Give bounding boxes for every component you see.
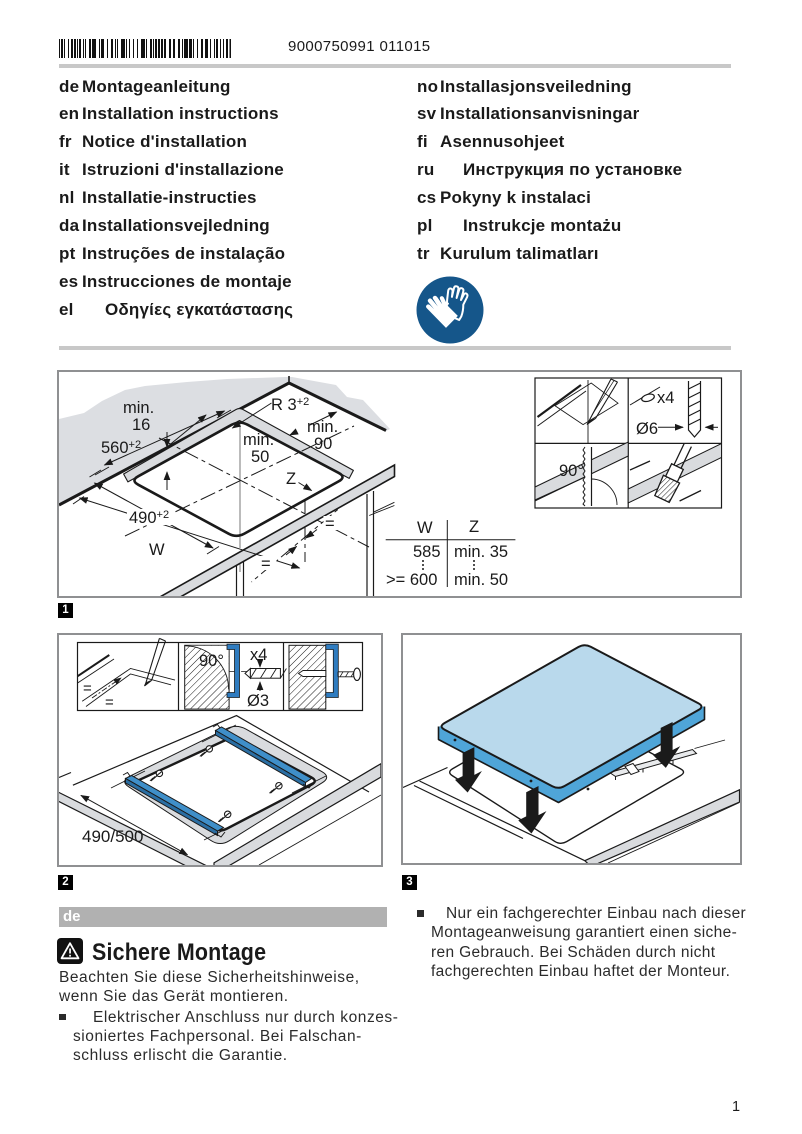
svg-text:90: 90 <box>314 435 332 453</box>
svg-text:16: 16 <box>132 416 150 434</box>
svg-text:>= 600: >= 600 <box>386 571 437 589</box>
svg-text:90°: 90° <box>199 652 224 670</box>
svg-text:=: = <box>325 515 335 533</box>
svg-text:min.: min. <box>243 431 274 449</box>
svg-text:Ø3: Ø3 <box>247 692 269 710</box>
svg-text:min. 50: min. 50 <box>454 571 508 589</box>
svg-text:=: = <box>261 555 271 573</box>
svg-text:50: 50 <box>251 448 269 466</box>
svg-text:Ø6: Ø6 <box>636 420 658 438</box>
svg-text:Z: Z <box>469 518 479 536</box>
svg-text:x4: x4 <box>250 646 267 664</box>
svg-text:R 3+2: R 3+2 <box>271 396 309 414</box>
svg-text:490/500: 490/500 <box>82 827 143 846</box>
svg-text:min.: min. <box>307 418 338 436</box>
svg-text:x4: x4 <box>657 389 674 407</box>
svg-text:=: = <box>105 694 114 711</box>
svg-text:W: W <box>149 541 165 559</box>
svg-text:585: 585 <box>413 543 441 561</box>
svg-text:Z: Z <box>286 470 296 488</box>
svg-text:min.: min. <box>123 399 154 417</box>
svg-text:min. 35: min. 35 <box>454 543 508 561</box>
svg-text:W: W <box>417 519 433 537</box>
svg-text:=: = <box>83 680 92 697</box>
svg-text:90°: 90° <box>559 462 584 480</box>
